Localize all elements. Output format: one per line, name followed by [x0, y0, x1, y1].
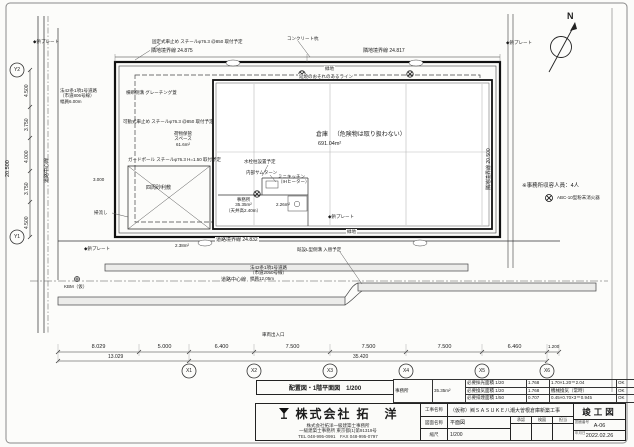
corner-area-label: 2.38m²	[175, 243, 189, 248]
comp-actual-3: 0.45×0.70×3＝0.945	[550, 395, 617, 403]
comp-judge-2: OK	[617, 387, 634, 395]
comp-judge-1: OK	[617, 380, 634, 388]
dim-bottom-6: 7.500	[429, 344, 460, 351]
scale-label: 縮尺	[421, 429, 448, 440]
drawing-sheet: N ※事務所収容人員：4人 ABC-10型粉末消火器 隣地境界線 24.875 …	[0, 0, 634, 447]
storage-line2: スペース	[174, 136, 192, 141]
dim-left-5: 4.500	[24, 216, 30, 229]
comp-item-1: 必要採光面積 1/20	[466, 380, 527, 388]
company-details: 株式会社拓洋一級建築士事務所 一級建築士事務所 東京都(1)第91319号 TE…	[298, 423, 378, 440]
dim-bottom-3: 6.400	[206, 344, 237, 351]
dim-bottom-8: 1.200	[548, 344, 559, 349]
company-name-row: 株式会社 拓 洋	[277, 405, 398, 422]
grid-y2: Y2	[10, 67, 24, 73]
dim-bottom-2: 5.000	[149, 344, 180, 351]
grid-x5: X5	[475, 368, 489, 374]
grid-y1: Y1	[10, 234, 24, 240]
pin-plate-3: ◆鋲プレート	[328, 214, 354, 219]
title-mid: 工事名称 （仮称）㈱ＳＡＳＵＫＥ八潮大曽根倉庫新築工事 図面名称 平面図 縮尺 …	[421, 404, 573, 440]
concrete-pile-note: コンクリート杭	[287, 36, 319, 41]
west-road-note: 法42条1項1号道路 （市道806号線） 幅員6.00m	[60, 88, 97, 104]
comp-req-2: 1.768	[527, 387, 550, 395]
compliance-table: 事務所 35.35m² 必要採光面積 1/20 1.768 1.70×1.20＝…	[393, 379, 634, 403]
dim-misc-3000: 3.000	[93, 177, 104, 182]
south-road-line3: 幅員12.05m	[250, 276, 287, 281]
drawing-number: A-06	[594, 423, 606, 430]
comp-room: 事務所	[394, 380, 433, 403]
project-row: 工事名称 （仮称）㈱ＳＡＳＵＫＥ八潮大曽根倉庫新築工事	[421, 404, 573, 417]
boundary-right: 隣地境界線 20.500	[486, 148, 492, 190]
dim-bottom-4: 7.500	[277, 344, 308, 351]
dim-bottom-1: 8.029	[83, 344, 114, 351]
company-cell: 株式会社 拓 洋 株式会社拓洋一級建築士事務所 一級建築士事務所 東京都(1)第…	[256, 404, 421, 440]
scale-row: 縮尺 1/200	[421, 429, 510, 440]
title-block: 株式会社 拓 洋 株式会社拓洋一級建築士事務所 一級建築士事務所 東京都(1)第…	[255, 403, 626, 441]
green-strip-bottom: 緑地	[346, 229, 357, 234]
storage-line3: 61.6m²	[174, 142, 192, 147]
date-value: 2022.02.26	[586, 433, 614, 440]
stamp-grid: 承認 検図 担当	[510, 417, 573, 440]
road-centerline-west: 道路中心線	[44, 158, 50, 183]
company-detail-line2: 一級建築士事務所 東京都(1)第91319号	[298, 428, 378, 434]
grid-x2: X2	[247, 368, 261, 374]
table-row: 事務所 35.35m² 必要採光面積 1/20 1.768 1.70×1.20＝…	[394, 380, 634, 388]
storage-label: 荷物保管 スペース 61.6m²	[174, 131, 192, 147]
grid-x4: X4	[399, 368, 413, 374]
project-name: （仮称）㈱ＳＡＳＵＫＥ八潮大曽根倉庫新築工事	[448, 404, 573, 416]
drawing-number-label: 図面番号	[575, 420, 589, 425]
dim-left-total: 20.500	[5, 160, 12, 177]
road-boundary: 道路境界線 24.832	[215, 237, 259, 243]
extinguisher-legend: ABC-10型粉末消火器	[557, 195, 600, 200]
dim-left-3: 4.000	[24, 150, 30, 163]
dim-left-4: 3.750	[24, 182, 30, 195]
comp-item-3: 必要排煙面積 1/50	[466, 395, 527, 403]
pin-plate-1: ◆鋲プレート	[33, 39, 59, 44]
north-label: N	[567, 11, 574, 22]
dim-total-left: 13.029	[108, 354, 123, 360]
project-label: 工事名称	[421, 404, 448, 416]
title-right: 竣工図 図面番号 A-06 年月日 2022.02.26	[573, 404, 625, 440]
water-tap-note: 水栓柱設置予定	[244, 159, 276, 164]
car-stop-movable-note: 可動式車止め スチールφ76.3 @850 取付予定	[123, 119, 214, 124]
warehouse-label: 倉庫 （危険物は取り扱わない）	[316, 132, 406, 139]
drawing-name-label: 図面名称	[421, 417, 448, 428]
completion-stamp: 竣工図	[574, 404, 625, 420]
thumbturn-note: 内部サムターン	[246, 170, 277, 175]
grating-note: 横断側溝 グレーチング蓋	[126, 90, 177, 95]
scale-value: 1/200	[448, 429, 510, 440]
comp-item-2: 必要換気面積 1/20	[466, 387, 527, 395]
check-label: 検図	[532, 417, 553, 423]
west-road-line2: （市道806号線）	[60, 93, 97, 98]
boundary-top-right: 隣地境界線 24.817	[362, 48, 406, 54]
comp-req-1: 1.768	[527, 380, 550, 388]
west-road-line3: 幅員6.00m	[60, 99, 97, 104]
warehouse-note: （危険物は取り扱わない）	[334, 132, 406, 138]
warehouse-area: 691.04m²	[318, 141, 341, 148]
slop-sink-note: 掃流し	[94, 210, 108, 215]
comp-actual-2: 機械換気（常時）	[550, 387, 617, 395]
dim-bottom-5: 7.500	[353, 344, 384, 351]
dim-bottom-7: 6.460	[499, 344, 530, 351]
comp-room-area: 35.35m²	[433, 380, 466, 403]
drawing-name-row: 図面名称 平面図	[421, 417, 510, 429]
company-detail-line3: TEL 048-995-0991 FAX 048-995-0797	[298, 434, 378, 440]
charge-label: 担当	[553, 417, 573, 423]
office-ceiling: （天井高2.40m）	[226, 208, 261, 213]
gutter-replace-note: 既設L型側溝 入替予定	[297, 247, 341, 252]
capacity-note: ※事務所収容人員：4人	[522, 183, 579, 190]
office-label: 事務所 35.35m² （天井高2.40m）	[226, 197, 261, 213]
company-logo	[277, 406, 291, 420]
fire-spread-line-label: 延焼のおそれのあるライン	[298, 74, 354, 79]
drawing-number-cell: 図面番号 A-06	[574, 420, 625, 431]
boundary-top-left: 隣地境界線 24.875	[150, 48, 194, 54]
dim-left-2: 3.750	[24, 118, 30, 131]
company-name: 株式会社 拓 洋	[295, 405, 398, 422]
south-road-line2: （市道2050号線）	[250, 270, 287, 275]
warehouse-name: 倉庫	[316, 132, 328, 138]
date-cell: 年月日 2022.02.26	[574, 431, 625, 441]
vehicle-entrance-note: 車両出入口	[262, 332, 285, 337]
date-label: 年月日	[575, 431, 586, 436]
drawing-name: 平面図	[448, 417, 510, 428]
green-strip-top: 緑地	[324, 66, 335, 71]
grid-x6: X6	[540, 368, 554, 374]
kitchen-line2: （IHヒーター）	[278, 179, 310, 184]
road-centerline-label: 道路中心線	[220, 277, 247, 283]
south-road-note: 法42条1項1号道路 （市道2050号線） 幅員12.05m	[250, 265, 287, 281]
check-stamp	[532, 424, 553, 440]
pin-plate-4: ◆鋲プレート	[84, 246, 110, 251]
kbm-marker-label: KBM（仮）	[64, 284, 87, 289]
guard-pole-note: ガードポール スチールφ76.3 H=1.50 取付予定	[128, 157, 221, 162]
dim-left-1: 4.500	[24, 84, 30, 97]
plan-caption: 配置図・1階平面図 1/200	[256, 380, 394, 395]
grid-x3: X3	[323, 368, 337, 374]
pin-plate-2: ◆鋲プレート	[506, 40, 532, 45]
charge-stamp	[553, 424, 573, 440]
comp-judge-3: OK	[617, 395, 634, 403]
kitchen-label: ミニキッチン （IHヒーター）	[278, 174, 310, 185]
comp-req-3: 0.707	[527, 395, 550, 403]
approve-stamp	[511, 424, 532, 440]
approve-label: 承認	[511, 417, 532, 423]
comp-actual-1: 1.70×1.20＝2.04	[550, 380, 617, 388]
gravel-label: 四周砂利敷	[146, 185, 171, 191]
car-stop-fixed-note: 固定式車止め スチールφ76.3 @850 取付予定	[152, 39, 243, 44]
grid-x1: X1	[182, 368, 196, 374]
dim-total-right: 35.420	[353, 354, 368, 360]
toilet-area-label: 2.26m²	[276, 202, 290, 207]
